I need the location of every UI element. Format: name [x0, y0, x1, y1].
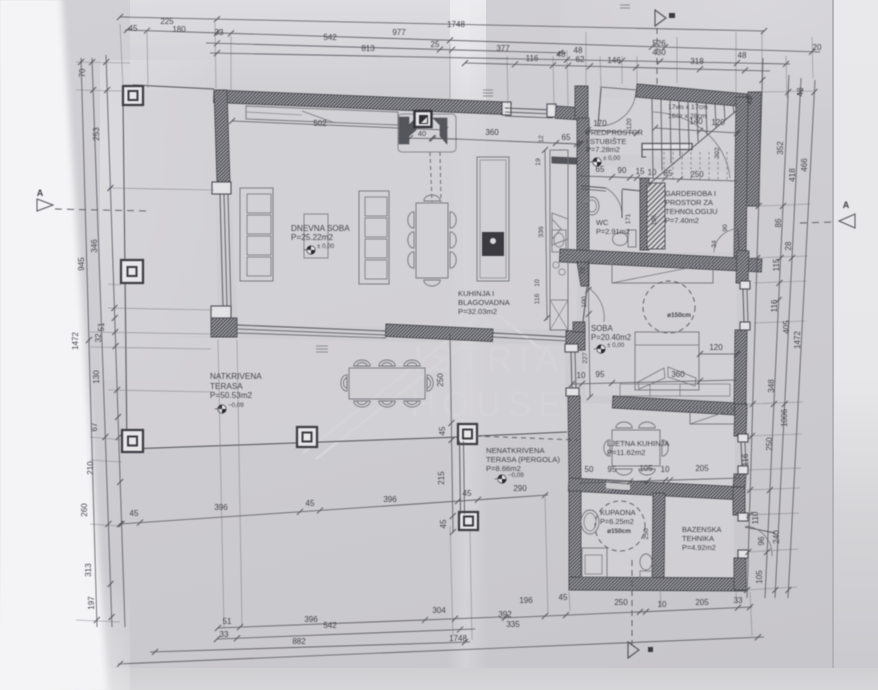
svg-text:105: 105 [755, 570, 764, 584]
svg-text:51: 51 [223, 617, 232, 626]
svg-text:945: 945 [77, 257, 86, 271]
svg-text:± 0,00: ± 0,00 [603, 155, 621, 162]
svg-text:120: 120 [709, 343, 723, 352]
svg-text:116: 116 [741, 453, 750, 466]
svg-text:170: 170 [593, 119, 607, 128]
svg-text:196: 196 [651, 214, 658, 225]
svg-text:210: 210 [86, 461, 95, 475]
svg-text:45: 45 [130, 509, 139, 518]
svg-text:P=4.92m2: P=4.92m2 [682, 543, 716, 552]
svg-text:BLAGOVADNA: BLAGOVADNA [458, 298, 511, 307]
svg-text:P=50.53m2: P=50.53m2 [210, 391, 253, 400]
svg-text:A: A [37, 188, 44, 198]
svg-text:48: 48 [574, 46, 583, 55]
svg-text:50: 50 [585, 465, 594, 474]
svg-text:67: 67 [90, 422, 99, 431]
svg-text:51: 51 [97, 322, 106, 331]
svg-text:205: 205 [695, 598, 709, 607]
svg-text:116: 116 [526, 54, 539, 63]
svg-text:LJETNA KUHINJA: LJETNA KUHINJA [607, 439, 670, 448]
svg-text:1748: 1748 [447, 20, 465, 29]
svg-text:96: 96 [757, 536, 766, 545]
svg-text:40: 40 [418, 129, 426, 138]
svg-text:197: 197 [87, 596, 96, 610]
svg-text:418: 418 [788, 168, 797, 182]
svg-text:335: 335 [506, 620, 520, 629]
svg-text:377: 377 [496, 44, 510, 53]
svg-text:45: 45 [438, 426, 447, 435]
svg-text:P=11.62m2: P=11.62m2 [607, 448, 646, 457]
svg-text:977: 977 [392, 28, 406, 37]
svg-text:10: 10 [648, 168, 657, 177]
svg-text:GARDEROBA I: GARDEROBA I [665, 189, 716, 198]
svg-text:P=20.40m2: P=20.40m2 [591, 333, 631, 342]
svg-text:48: 48 [738, 51, 747, 60]
svg-text:45: 45 [439, 519, 448, 528]
svg-text:78: 78 [580, 267, 587, 275]
svg-text:± 0,00: ± 0,00 [607, 342, 625, 349]
svg-text:250: 250 [643, 528, 650, 540]
svg-text:215: 215 [437, 471, 446, 485]
svg-text:KUHINJA I: KUHINJA I [458, 289, 494, 298]
svg-text:502: 502 [313, 119, 327, 128]
svg-text:45: 45 [129, 24, 138, 33]
svg-text:−0,09: −0,09 [228, 402, 244, 409]
svg-text:180: 180 [172, 25, 186, 34]
svg-text:1006: 1006 [780, 409, 789, 427]
svg-text:10: 10 [658, 600, 667, 609]
svg-text:NATKRIVENA: NATKRIVENA [210, 372, 262, 381]
svg-text:250: 250 [436, 373, 445, 387]
svg-text:17vis x 17cm: 17vis x 17cm [668, 104, 708, 111]
svg-text:TEHNOLOGIJU: TEHNOLOGIJU [665, 207, 718, 216]
svg-text:ø150cm: ø150cm [667, 312, 691, 319]
svg-text:196: 196 [519, 596, 533, 605]
svg-text:250: 250 [765, 437, 774, 451]
svg-text:P=25.22m2: P=25.22m2 [291, 233, 334, 242]
svg-text:115: 115 [772, 258, 781, 271]
svg-text:205: 205 [695, 464, 709, 473]
svg-text:110: 110 [751, 511, 760, 524]
svg-text:290: 290 [513, 484, 527, 493]
svg-text:405: 405 [782, 320, 791, 334]
svg-text:227: 227 [582, 352, 589, 364]
svg-text:−0,09: −0,09 [508, 472, 524, 479]
svg-text:116: 116 [534, 293, 541, 304]
svg-text:48: 48 [796, 87, 805, 96]
svg-text:62: 62 [576, 55, 585, 64]
svg-text:TERASA: TERASA [210, 382, 243, 391]
svg-text:85: 85 [664, 169, 673, 178]
svg-text:12: 12 [538, 135, 545, 143]
svg-text:65: 65 [562, 133, 571, 142]
svg-text:48: 48 [745, 95, 754, 104]
svg-text:PROSTOR ZA: PROSTOR ZA [665, 198, 713, 207]
svg-text:19: 19 [535, 158, 542, 166]
svg-text:NENATKRIVENA: NENATKRIVENA [486, 446, 545, 455]
svg-text:15: 15 [636, 167, 645, 176]
svg-text:318: 318 [690, 57, 704, 66]
svg-text:1472: 1472 [793, 331, 802, 349]
svg-text:33: 33 [734, 596, 743, 605]
svg-text:100: 100 [581, 296, 588, 308]
svg-text:250: 250 [690, 170, 704, 179]
svg-text:360: 360 [671, 370, 685, 379]
svg-text:90: 90 [618, 166, 627, 175]
svg-text:120: 120 [626, 118, 633, 130]
svg-text:A: A [843, 200, 850, 210]
svg-text:171: 171 [625, 213, 632, 224]
svg-text:SOBA: SOBA [591, 324, 613, 333]
svg-text:BAZENSKA: BAZENSKA [682, 525, 721, 534]
svg-text:KUPAONA: KUPAONA [600, 508, 636, 517]
svg-text:WC: WC [596, 218, 609, 227]
svg-text:10: 10 [661, 465, 670, 474]
svg-text:542: 542 [323, 621, 337, 630]
svg-text:146: 146 [607, 56, 621, 65]
svg-text:33: 33 [215, 28, 224, 37]
svg-text:70: 70 [78, 68, 87, 77]
svg-text:396: 396 [383, 495, 397, 504]
svg-text:352: 352 [776, 141, 785, 155]
svg-text:95: 95 [608, 465, 617, 474]
svg-text:430: 430 [652, 48, 666, 57]
svg-text:95: 95 [596, 370, 605, 379]
svg-text:360: 360 [485, 128, 499, 137]
svg-text:45: 45 [559, 593, 568, 602]
svg-text:260: 260 [80, 503, 89, 517]
svg-text:253: 253 [92, 127, 101, 141]
svg-text:240: 240 [772, 530, 781, 544]
svg-text:TERASA (PERGOLA): TERASA (PERGOLA) [486, 455, 560, 464]
svg-text:250: 250 [614, 598, 628, 607]
svg-text:P=32.03m2: P=32.03m2 [458, 307, 497, 316]
svg-text:313: 313 [84, 563, 93, 577]
svg-text:116: 116 [770, 299, 779, 312]
svg-text:346: 346 [90, 239, 99, 253]
svg-text:526: 526 [652, 39, 666, 48]
svg-text:48: 48 [557, 50, 566, 59]
svg-text:304: 304 [432, 606, 446, 615]
svg-text:348: 348 [767, 379, 776, 393]
svg-text:140: 140 [689, 117, 703, 126]
svg-text:1748: 1748 [449, 634, 467, 643]
svg-text:25: 25 [431, 40, 440, 49]
svg-text:466: 466 [800, 158, 809, 172]
svg-text:813: 813 [361, 44, 375, 53]
svg-text:DNEVNA SOBA: DNEVNA SOBA [291, 224, 350, 233]
svg-text:32: 32 [94, 333, 103, 342]
svg-text:396: 396 [214, 503, 228, 512]
svg-text:28: 28 [784, 241, 793, 250]
svg-text:130: 130 [92, 370, 101, 384]
svg-text:1472: 1472 [71, 332, 80, 350]
svg-text:P=7.40m2: P=7.40m2 [665, 216, 699, 225]
svg-text:105: 105 [639, 464, 653, 473]
svg-text:45: 45 [463, 489, 472, 498]
svg-text:10: 10 [534, 279, 541, 287]
svg-text:± 0,00: ± 0,00 [317, 243, 335, 250]
svg-text:ø150cm: ø150cm [607, 528, 631, 535]
svg-text:P=6.25m2: P=6.25m2 [600, 517, 634, 526]
svg-text:542: 542 [323, 33, 337, 42]
svg-text:396: 396 [304, 615, 318, 624]
svg-text:302: 302 [714, 147, 721, 159]
svg-text:20: 20 [813, 43, 822, 52]
svg-text:86: 86 [774, 218, 783, 227]
svg-text:P=2.91m2: P=2.91m2 [596, 227, 630, 236]
svg-text:90: 90 [722, 224, 729, 232]
svg-text:10: 10 [577, 371, 586, 380]
svg-text:34: 34 [711, 240, 718, 248]
svg-text:33: 33 [220, 630, 229, 639]
svg-text:120: 120 [711, 118, 725, 127]
svg-text:336: 336 [538, 226, 545, 238]
svg-text:392: 392 [498, 610, 512, 619]
svg-text:65: 65 [596, 165, 605, 174]
svg-text:P=7.28m2: P=7.28m2 [586, 145, 620, 154]
svg-text:45: 45 [306, 499, 315, 508]
svg-text:882: 882 [292, 637, 306, 646]
svg-text:TEHNIKA: TEHNIKA [682, 534, 714, 543]
